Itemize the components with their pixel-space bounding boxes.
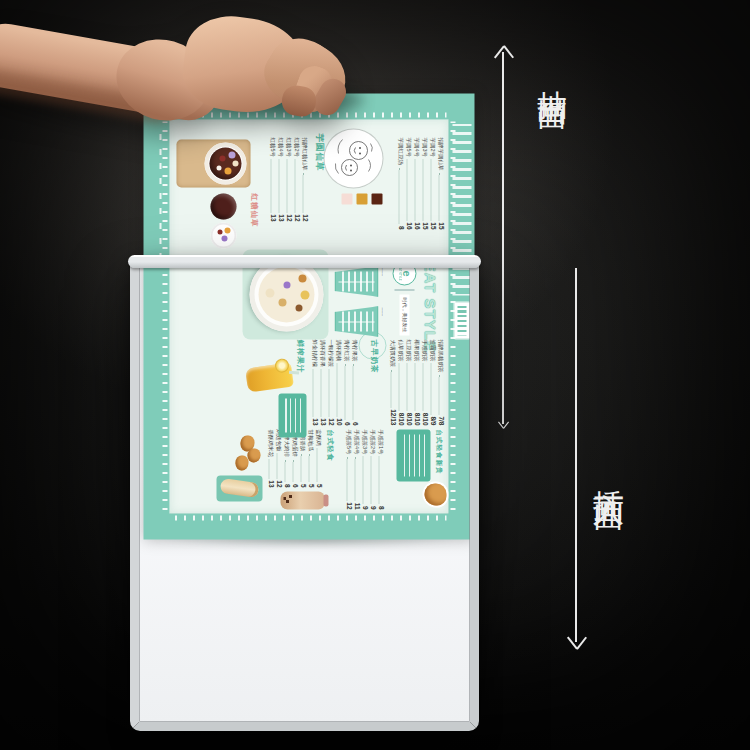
section-hongtang-title: 红糖仙草 [249, 194, 259, 228]
taro-bowl [205, 143, 247, 185]
menu-item: 芋圆2号15 [429, 138, 437, 230]
menu-item: 红糖5号13 [269, 138, 277, 222]
menu-item: 招牌芋圆仙草15 [437, 138, 445, 230]
insert-arrowhead-icon [568, 633, 584, 649]
taro-dessert-photo [177, 140, 251, 188]
menu-item: 芋圆5号16 [405, 138, 413, 230]
menu-item: 芋圆3号15 [421, 138, 429, 230]
red-bean-bowl-photo [211, 194, 237, 220]
menu-item: 芋圆4号16 [413, 138, 421, 230]
taro-ball-bowl-photo [211, 223, 237, 249]
cartoon-doodle-illustration [325, 130, 383, 188]
insert-arrow-line [575, 268, 577, 642]
section-yuyuan-items: 招牌芋圆仙草15芋圆2号15芋圆3号15芋圆4号16芋圆5号16芋圆红豆汤8 [397, 138, 445, 230]
menu-item: 红糖3号12 [285, 138, 293, 222]
menu-item: 招牌红糖仙草12 [301, 138, 309, 222]
menu-item: 芋圆红豆汤8 [397, 138, 405, 230]
frame-top-rail [128, 255, 481, 268]
menu-item: 红糖2号12 [293, 138, 301, 222]
section-hongtang-items: 招牌红糖仙草12红糖2号12红糖3号12红糖4号13红糖5号13 [269, 138, 309, 222]
pull-out-arrow-tail-icon [499, 420, 508, 429]
product-photo-scene: 抽出画面 插入画面 EAT STYLE e EAT STYLE 时代，美好发生 [0, 0, 750, 750]
swatch-pink [342, 194, 353, 205]
insert-label: 插入画面 [588, 465, 630, 481]
menu-item: 红糖4号13 [277, 138, 285, 222]
swatch-amber [357, 194, 368, 205]
swatch-brown [372, 194, 383, 205]
pull-out-arrowhead-icon [495, 46, 511, 62]
pull-out-arrow-line [502, 52, 504, 424]
pull-out-label: 抽出画面 [531, 67, 572, 83]
section-yuyuan-title: 芋圆仙草 [313, 134, 325, 172]
poster-frame[interactable] [130, 256, 479, 731]
footer-dash-decor [160, 134, 162, 262]
